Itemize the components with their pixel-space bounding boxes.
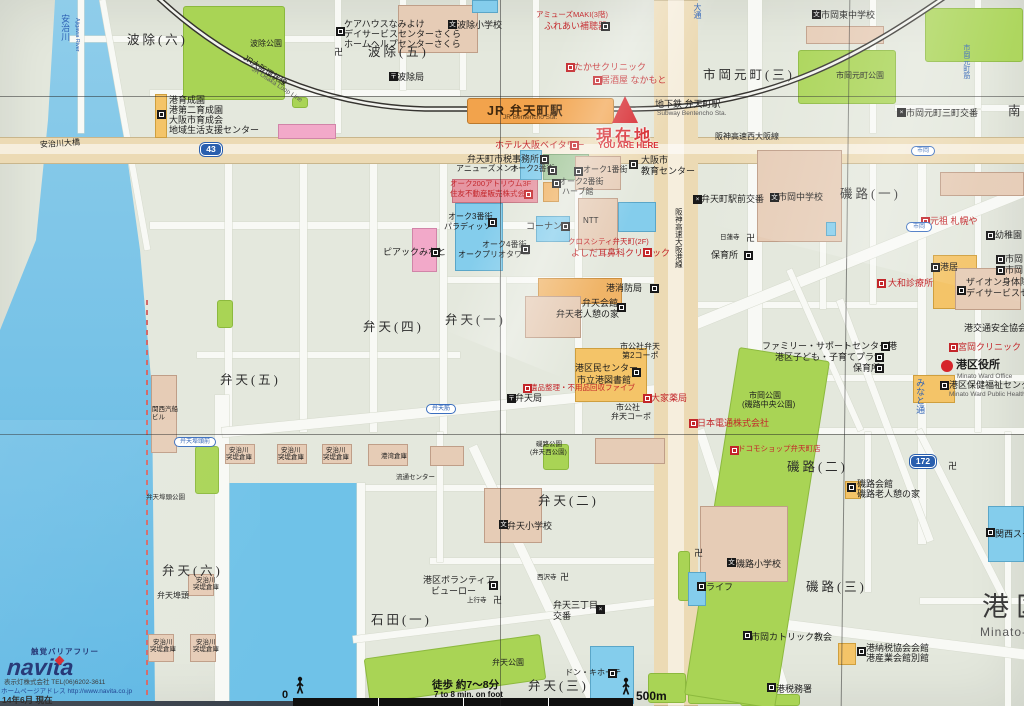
poi-label: 居酒屋 なかもと — [601, 75, 666, 85]
poi-label: 弁天埠頭 — [157, 592, 189, 601]
post-office-icon: 〒 — [389, 72, 398, 81]
poi-label: 大家薬局 — [651, 393, 687, 403]
road-name-vertical: みなと通 — [915, 378, 925, 414]
building — [472, 0, 498, 13]
poi-label: 市岡カトリック教会 — [751, 632, 832, 642]
ward-name: 港区 — [982, 592, 1024, 622]
poi-label: 港消防局 — [606, 283, 642, 293]
facility-icon-red — [570, 141, 579, 150]
poi-label: オーク3番街 — [448, 213, 492, 222]
poi-label: 上行寺 — [467, 597, 487, 604]
road — [225, 164, 232, 432]
poi-label: ドコモショップ弁天町店 — [738, 445, 821, 453]
poi-label: 阪神高速西大阪線 — [715, 133, 779, 142]
facility-icon — [561, 222, 570, 231]
poi-label: 港区子ども・子育てプラザ — [775, 352, 883, 362]
poi-label: 市岡 — [1005, 265, 1023, 275]
facility-icon — [650, 284, 659, 293]
poi-label: 教育センター — [641, 166, 695, 176]
poi-label: 港第二育成園 — [169, 105, 223, 115]
facility-icon-red — [524, 190, 533, 199]
poi-label: 市岡中学校 — [778, 192, 823, 202]
facility-icon-red — [643, 248, 652, 257]
poi-label: デイサービスセンターさくら — [344, 29, 461, 39]
facility-icon — [697, 582, 706, 591]
poi-label: 遺品整理・不用品回収ファイブ — [530, 384, 635, 392]
poi-label: 弁天小学校 — [507, 521, 552, 531]
map-date: 14年6月 現在 — [2, 696, 53, 706]
poi-label: 西沢寺 — [537, 574, 557, 581]
facility-icon-red — [877, 279, 886, 288]
facility-icon — [540, 155, 549, 164]
temple-icon: 卍 — [560, 573, 569, 582]
poi-label: 港区民センター — [575, 363, 638, 373]
facility-icon — [767, 683, 776, 692]
road — [335, 0, 341, 133]
facility-icon — [881, 342, 890, 351]
facility-icon-red — [949, 343, 958, 352]
poi-label: ビューロー — [431, 586, 476, 596]
road — [357, 483, 365, 706]
park — [217, 300, 233, 328]
poi-label: 突堤倉庫 — [193, 646, 219, 653]
poi-label: ふれあい補聴器 — [544, 21, 607, 31]
poi-label: 弁天老人憩の家 — [556, 309, 619, 319]
poi-label: 宮岡クリニック — [958, 342, 1021, 352]
facility-icon — [857, 647, 866, 656]
district-label: 弁天(二) — [538, 494, 599, 508]
road — [370, 164, 377, 432]
building — [595, 438, 665, 464]
district-label: 弁天(一) — [445, 313, 506, 327]
poi-label: NTT — [583, 217, 599, 226]
poi-label: よしだ耳鼻科クリニック — [571, 248, 670, 258]
facility-icon-red — [593, 76, 602, 85]
water-benten-pier-basin — [227, 483, 357, 706]
poi-label: 港交通安全協会 — [964, 323, 1024, 333]
ward-office-icon — [941, 360, 953, 372]
district-label: 弁天(三) — [528, 679, 589, 693]
building — [618, 202, 656, 232]
facility-icon-red — [566, 63, 575, 72]
poi-label: 元祖 札幌や — [930, 216, 978, 226]
park — [195, 446, 219, 494]
road-name-vertical: 安治川 — [60, 14, 70, 41]
facility-icon — [521, 245, 530, 254]
building — [278, 124, 336, 139]
road-name-vertical: Ajigawa River — [74, 18, 80, 52]
water-ajigawa-river — [0, 0, 170, 706]
poi-label: オーク2番街 — [559, 178, 603, 187]
district-label: 磯路(三) — [806, 580, 867, 594]
school-icon: 文 — [770, 193, 779, 202]
temple-icon: 卍 — [948, 462, 957, 471]
district-label: 市岡元町(三) — [703, 68, 795, 82]
post-office-icon: 〒 — [507, 394, 516, 403]
poi-label: 大阪市 — [641, 155, 668, 165]
road-name-vertical: 阪神高速大阪港線 — [674, 208, 682, 268]
facility-icon — [488, 218, 497, 227]
facility-icon — [931, 263, 940, 272]
poi-label: 市岡元町公園 — [836, 72, 884, 81]
poi-label: オークプリオタワー — [458, 251, 530, 260]
road — [215, 395, 229, 706]
road-name-sign: 弁天筋 — [426, 404, 456, 414]
district-label: 弁天(四) — [363, 320, 424, 334]
poi-label: Subway Bentencho Sta. — [657, 110, 726, 117]
district-label: 磯路(一) — [840, 187, 901, 201]
poi-label: 市岡東中学校 — [821, 10, 875, 20]
poi-label: 突堤倉庫 — [150, 646, 176, 653]
road — [440, 164, 447, 434]
facility-icon-red — [730, 446, 739, 455]
poi-label: (磯路中央公園) — [742, 401, 795, 410]
police-box-icon: × — [596, 605, 605, 614]
building — [940, 172, 1024, 196]
road-name-sign: 弁天埠頭前 — [174, 437, 216, 447]
poi-label: 突堤倉庫 — [278, 454, 304, 461]
poi-label: パラディッソ — [444, 223, 491, 232]
scale-distance: 500m — [636, 689, 667, 703]
poi-label: 地域生活支援センター — [169, 125, 259, 135]
poi-label: ビル — [152, 414, 165, 421]
poi-label: 弁天三丁目 — [553, 600, 598, 610]
poi-label: 港納税協会会館 — [866, 643, 929, 653]
facility-icon — [986, 528, 995, 537]
facility-icon — [996, 255, 1005, 264]
scale-zero: 0 — [282, 689, 288, 701]
park — [183, 6, 285, 100]
poi-label: 弁天コーポ — [611, 413, 651, 422]
district-label: 弁天(六) — [162, 564, 223, 578]
road — [870, 164, 876, 304]
poi-label: オーク1番街 — [583, 166, 627, 175]
facility-icon — [431, 248, 440, 257]
poi-label: たかせクリニック — [574, 62, 646, 72]
facility-icon — [744, 251, 753, 260]
road-name-vertical: 大通 — [692, 3, 701, 19]
building — [826, 222, 836, 236]
map-fold-line — [500, 0, 501, 706]
poi-label: 地下鉄 弁天町駅 — [655, 99, 721, 109]
school-icon: 文 — [727, 558, 736, 567]
navita-company: 表示灯株式会社 TEL(06)6202-3611 — [4, 679, 105, 686]
district-label: 波除(六) — [127, 33, 188, 47]
poi-label: 波除小学校 — [457, 20, 502, 30]
road — [430, 558, 655, 564]
poi-label: 磯路会館 — [857, 479, 893, 489]
poi-label: 港湾倉庫 — [381, 453, 407, 460]
district-label: 磯路(二) — [787, 460, 848, 474]
poi-label: 関西スーパー — [995, 529, 1024, 539]
facility-icon — [552, 179, 561, 188]
poi-label: 市岡元町三町交番 — [906, 108, 978, 118]
poi-label: ファミリー・サポートセンター港 — [762, 341, 897, 351]
district-label: 弁天(五) — [220, 373, 281, 387]
poi-label: 日本電通株式会社 — [697, 418, 769, 428]
navita-logo: navita — [6, 654, 74, 681]
police-box-icon: × — [693, 195, 702, 204]
facility-icon — [601, 22, 610, 31]
poi-label: 突堤倉庫 — [226, 454, 252, 461]
walk-time-en: 7 to 8 min. on foot — [434, 690, 503, 699]
poi-label: 波除公園 — [250, 40, 282, 49]
poi-label: 関西汽船 — [152, 406, 178, 413]
poi-label: 大和診療所 — [888, 278, 933, 288]
facility-icon — [629, 160, 638, 169]
scale-bar-tick — [548, 698, 549, 706]
facility-icon — [608, 669, 617, 678]
poi-label: 磯路小学校 — [736, 559, 781, 569]
building — [430, 446, 464, 466]
poi-label: 流通センター — [396, 474, 435, 481]
facility-icon — [957, 286, 966, 295]
temple-icon: 卍 — [694, 549, 703, 558]
temple-icon: 卍 — [746, 234, 755, 243]
facility-icon — [489, 581, 498, 590]
poi-label: オーク200アトリウム3F — [450, 180, 531, 188]
poi-label: 突堤倉庫 — [193, 584, 219, 591]
poi-label: 弁天町市税事務所 — [467, 154, 539, 164]
poi-label: 弁天会館 — [582, 298, 618, 308]
facility-icon — [875, 353, 884, 362]
poi-label: コーナン — [526, 221, 562, 231]
road-name-vertical: 市岡元町筋 — [962, 44, 970, 79]
poi-label: オーク4番街 — [482, 241, 526, 250]
building — [700, 506, 788, 582]
facility-icon — [157, 110, 166, 119]
poi-label: Minato Ward Public Health and Welf — [949, 391, 1024, 398]
station-name-en: JR Bentencho Sta. — [503, 114, 557, 121]
ward-name-en: Minato- — [980, 626, 1024, 639]
poi-label: ザイオン身体障害 — [966, 277, 1024, 287]
poi-label: 弁天局 — [515, 393, 542, 403]
district-label: 石田(一) — [371, 613, 432, 627]
facility-icon — [617, 303, 626, 312]
poi-label: 港居 — [940, 262, 958, 272]
poi-label: 弁天埠頭公園 — [146, 494, 185, 501]
building — [806, 26, 884, 44]
you-are-here-marker — [612, 96, 638, 123]
facility-icon — [548, 166, 557, 175]
route-shield: 43 — [200, 143, 222, 156]
poi-label: (弁天西公園) — [530, 449, 567, 456]
poi-label: ハーブ館 — [562, 188, 594, 197]
map-fold-line — [0, 434, 1024, 435]
poi-label: デイサービスセ — [966, 288, 1024, 298]
poi-label: 港産業会館別館 — [866, 653, 929, 663]
poi-label: 住友不動産販売株式会社 — [450, 190, 533, 198]
pedestrian-icon — [295, 676, 305, 695]
poi-label: 保育所 — [711, 250, 738, 260]
facility-icon — [940, 381, 949, 390]
facility-icon — [574, 167, 583, 176]
you-are-here-label-en: YOU ARE HERE — [598, 141, 659, 150]
poi-label: 大阪市育成会 — [169, 115, 223, 125]
police-box-icon: × — [897, 108, 906, 117]
facility-icon — [875, 364, 884, 373]
bentencho-area-guide-map: 波除(六)波除(五)市岡元町(三)弁天(四)弁天(一)弁天(五)弁天(六)弁天(… — [0, 0, 1024, 706]
poi-label: 弁天公園 — [492, 659, 524, 668]
poi-label: 日蓮寺 — [720, 234, 740, 241]
poi-label: 港税務署 — [776, 684, 812, 694]
road-name-sign: 市岡 — [906, 222, 932, 232]
poi-label: 交番 — [553, 611, 571, 621]
school-icon: 文 — [448, 20, 457, 29]
road — [1005, 432, 1011, 706]
poi-label: 第2コーポ — [622, 352, 658, 361]
poi-label: 港区保健福祉センター — [949, 380, 1024, 390]
road-name-sign: 市岡 — [911, 146, 935, 156]
poi-label: 弁天町駅前交番 — [701, 194, 764, 204]
scale-bar-tick — [378, 698, 379, 706]
poi-label: 磯路老人憩の家 — [857, 489, 920, 499]
poi-label: 突堤倉庫 — [323, 454, 349, 461]
road — [197, 352, 460, 358]
route-shield: 172 — [910, 455, 936, 468]
poi-label: 市岡 — [1005, 254, 1023, 264]
poi-label: 港区ボランティア — [423, 575, 494, 585]
building — [484, 488, 542, 543]
poi-label: ホームヘルプセンターさくら — [344, 39, 461, 49]
temple-icon: 卍 — [334, 48, 343, 57]
facility-icon-red — [523, 384, 532, 393]
poi-label: 磯路公園 — [536, 441, 562, 448]
facility-icon — [996, 266, 1005, 275]
facility-icon-red — [689, 419, 698, 428]
pedestrian-icon — [621, 677, 631, 696]
poi-label: 幼稚園 — [995, 230, 1022, 240]
poi-label: ライフ — [706, 582, 733, 592]
facility-icon — [632, 368, 641, 377]
poi-label: ケアハウスなみよけ — [344, 19, 425, 29]
facility-icon-red — [643, 394, 652, 403]
poi-label: 波除局 — [397, 72, 424, 82]
facility-icon — [847, 483, 856, 492]
poi-label: クロスシティ弁天町(2F) — [568, 238, 649, 246]
poi-label: 港区役所 — [956, 359, 1000, 371]
facility-icon — [743, 631, 752, 640]
map-fold-line — [0, 96, 1024, 97]
school-icon: 文 — [812, 10, 821, 19]
road — [300, 164, 307, 432]
road — [865, 432, 871, 592]
facility-icon — [986, 231, 995, 240]
district-label: 南 — [1008, 104, 1024, 118]
facility-icon — [336, 27, 345, 36]
scale-bar-tick — [463, 698, 464, 706]
poi-label: アミューズMAKI(3階) — [536, 11, 608, 19]
park — [925, 8, 1023, 62]
